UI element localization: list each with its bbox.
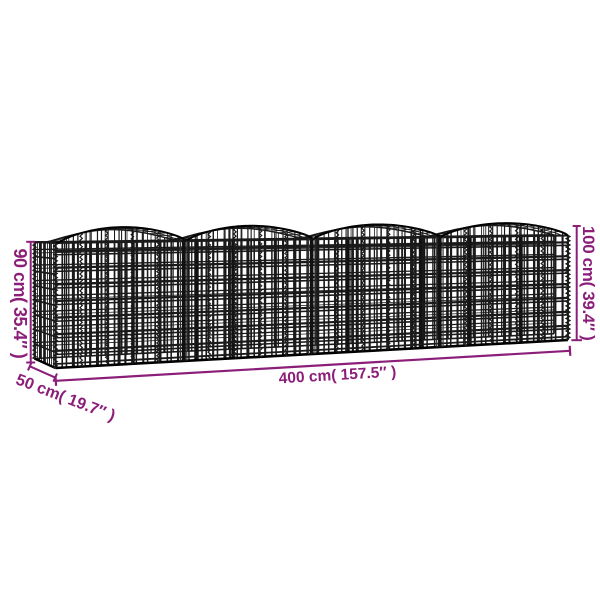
svg-text:90 cm( 35.4″ ): 90 cm( 35.4″ ) — [10, 249, 30, 359]
svg-text:100 cm( 39.4″ ): 100 cm( 39.4″ ) — [579, 226, 598, 340]
